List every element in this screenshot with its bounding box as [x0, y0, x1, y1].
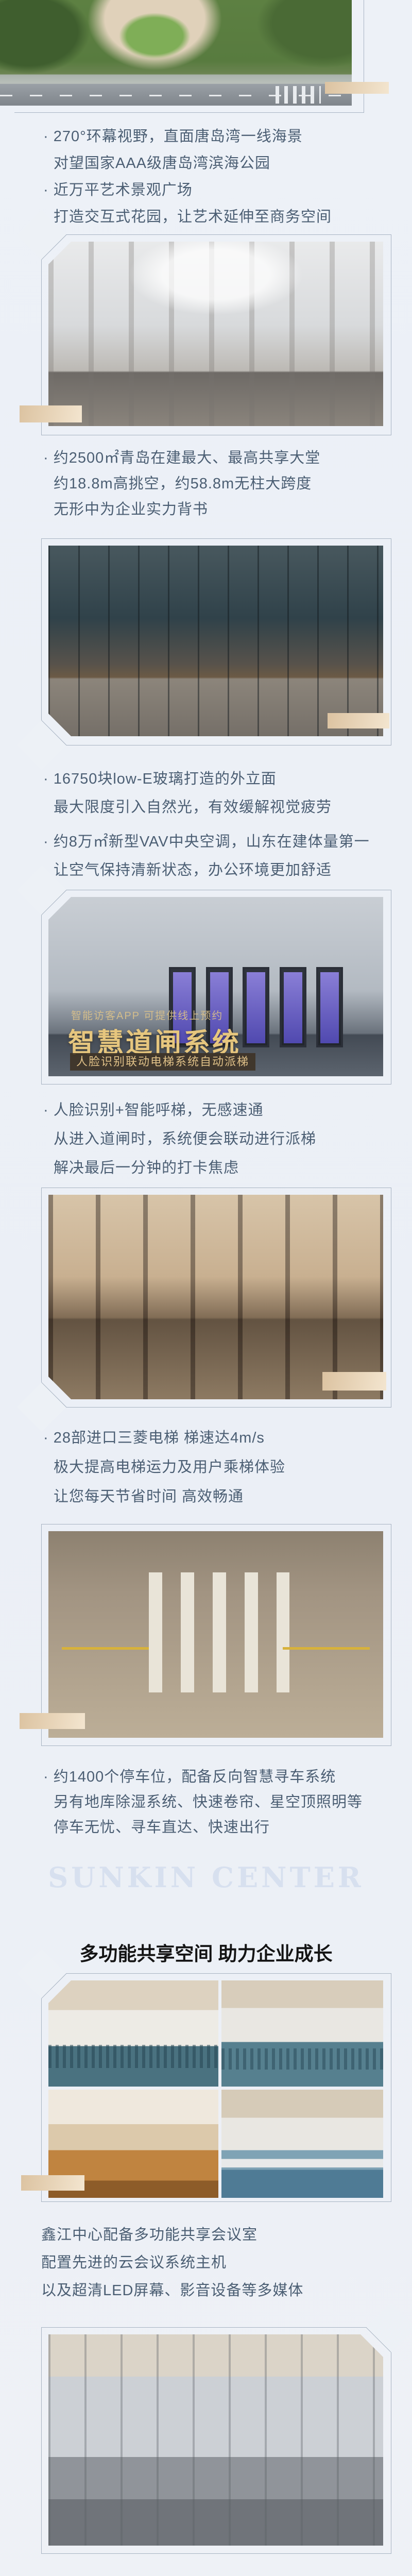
crosswalk-stripes	[149, 1572, 289, 1692]
gold-accent-bar	[322, 1372, 386, 1391]
gold-accent-bar	[20, 1713, 85, 1729]
text-line: 让空气保持清新状态，办公环境更加舒适	[43, 856, 399, 885]
shared-space-heading: 多功能共享空间 助力企业成长	[0, 1938, 412, 1966]
conference-room-photo	[221, 2090, 383, 2198]
text-line: 约18.8m高挑空，约58.8m无柱大跨度	[43, 471, 399, 497]
lobby-feature-text: · 约2500㎡青岛在建最大、最高共享大堂 约18.8m高挑空，约58.8m无柱…	[43, 445, 399, 522]
text-line: · 16750块low-E玻璃打造的外立面	[43, 765, 399, 793]
text-line: · 人脸识别+智能呼梯，无感速通	[43, 1096, 399, 1125]
gate-overlay-tagline: 智能访客APP 可提供线上预约	[71, 1007, 223, 1022]
parking-garage-photo	[48, 1531, 383, 1738]
page: · 270°环幕视野，直面唐岛湾一线海景 对望国家AAA级唐岛湾滨海公园 · 近…	[0, 0, 412, 2576]
text-line: · 270°环幕视野，直面唐岛湾一线海景	[43, 123, 399, 150]
text-line: · 约2500㎡青岛在建最大、最高共享大堂	[43, 445, 399, 471]
lobby-atrium-photo	[48, 242, 383, 426]
text-line: 对望国家AAA级唐岛湾滨海公园	[43, 150, 399, 177]
text-line: · 约8万㎡新型VAV中央空调，山东在建体量第一	[43, 828, 399, 856]
view-feature-text: · 270°环幕视野，直面唐岛湾一线海景 对望国家AAA级唐岛湾滨海公园 · 近…	[43, 123, 399, 230]
facade-feature-text: · 16750块low-E玻璃打造的外立面 最大限度引入自然光，有效缓解视觉疲劳…	[43, 765, 399, 885]
text-line: · 28部进口三菱电梯 梯速达4m/s	[43, 1423, 399, 1453]
gate-feature-text: · 人脸识别+智能呼梯，无感速通 从进入道闸时，系统便会联动进行派梯 解决最后一…	[43, 1096, 399, 1182]
shared-office-photo	[48, 2334, 383, 2546]
text-line: 鑫江中心配备多功能共享会议室	[41, 2221, 397, 2249]
training-room-photo-1	[48, 1980, 218, 2087]
facade-street-photo	[48, 546, 383, 736]
gold-accent-bar	[325, 82, 389, 94]
shared-desc-text: 鑫江中心配备多功能共享会议室 配置先进的云会议系统主机 以及超清LED屏幕、影音…	[41, 2221, 397, 2304]
text-line: 无形中为企业实力背书	[43, 497, 399, 522]
booking-text: 企业通过预约 可免费使用共享会议室 还可以选择礼仪、饮品供应等商务增值服务 可匹…	[40, 2571, 396, 2576]
text-line: 打造交互式花园，让艺术延伸至商务空间	[43, 204, 399, 230]
gold-accent-bar	[21, 2175, 84, 2191]
gold-accent-bar	[20, 405, 82, 422]
training-room-photo-2	[221, 1980, 383, 2087]
gate-overlay-banner: 人脸识别联动电梯系统自动派梯	[70, 1053, 255, 1071]
lane-line	[62, 1647, 149, 1650]
elevator-feature-text: · 28部进口三菱电梯 梯速达4m/s 极大提高电梯运力及用户乘梯体验 让您每天…	[43, 1423, 399, 1512]
text-line: 另有地库除湿系统、快速卷帘、星空顶照明等	[43, 1790, 399, 1815]
watermark-sunkin-center: SUNKIN CENTER	[0, 1861, 412, 1894]
lane-line	[283, 1647, 370, 1650]
photo-frame	[14, 0, 364, 113]
parking-feature-text: · 约1400个停车位，配备反向智慧寻车系统 另有地库除湿系统、快速卷帘、星空顶…	[43, 1765, 399, 1840]
elevator-hall-photo	[48, 1195, 383, 1399]
text-line: 从进入道闸时，系统便会联动进行派梯	[43, 1125, 399, 1154]
text-line: 让您每天节省时间 高效畅通	[43, 1482, 399, 1512]
text-line: 配置先进的云会议系统主机	[41, 2249, 397, 2277]
gold-accent-bar	[328, 713, 389, 728]
text-line: · 约1400个停车位，配备反向智慧寻车系统	[43, 1765, 399, 1790]
text-line: 最大限度引入自然光，有效缓解视觉疲劳	[43, 793, 399, 822]
text-line: · 近万平艺术景观广场	[43, 177, 399, 204]
text-line: 极大提高电梯运力及用户乘梯体验	[43, 1453, 399, 1482]
text-line: 企业通过预约	[40, 2571, 396, 2576]
text-line: 解决最后一分钟的打卡焦虑	[43, 1154, 399, 1182]
text-line: 以及超清LED屏幕、影音设备等多媒体	[41, 2277, 397, 2304]
text-line: 停车无忧、寻车直达、快速出行	[43, 1815, 399, 1840]
